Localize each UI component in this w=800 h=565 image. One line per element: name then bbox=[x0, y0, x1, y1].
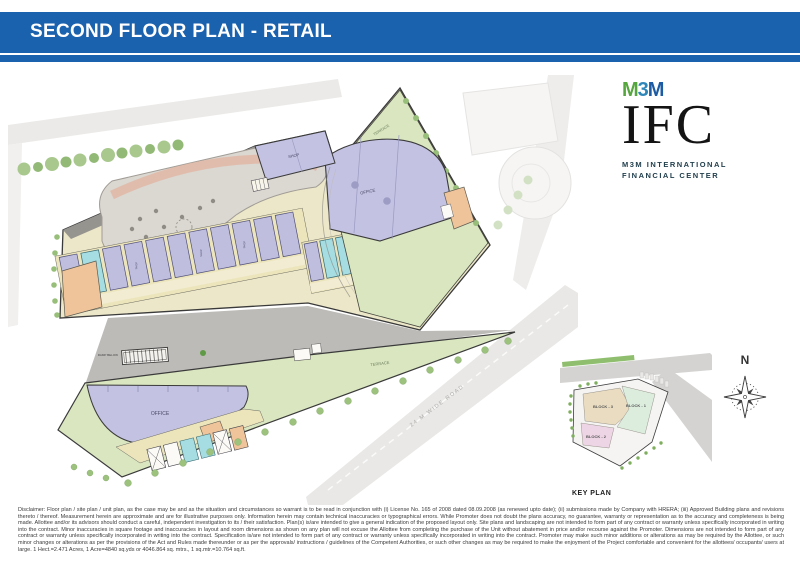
disclaimer-text: Disclaimer: Floor plan / site plan / uni… bbox=[18, 507, 784, 553]
ramp bbox=[122, 347, 169, 364]
key-block-1-label: BLOCK - 1 bbox=[626, 403, 647, 408]
title-bar: SECOND FLOOR PLAN - RETAIL bbox=[0, 12, 800, 62]
service-room bbox=[294, 348, 311, 361]
service-room bbox=[312, 343, 322, 353]
title-bar-divider bbox=[0, 53, 800, 55]
column bbox=[351, 181, 359, 189]
compass-north-label: N bbox=[741, 353, 750, 367]
ifc-logo: IFC bbox=[622, 100, 787, 152]
logo-tagline: M3M INTERNATIONAL FINANCIAL CENTER bbox=[622, 159, 787, 182]
compass-rose-icon bbox=[724, 376, 766, 418]
key-block-2-label: BLOCK - 2 bbox=[586, 434, 607, 439]
logo-tagline-line2: FINANCIAL CENTER bbox=[622, 171, 719, 180]
shop-label: SHOP bbox=[134, 262, 138, 270]
key-road-top bbox=[560, 353, 712, 383]
page-title: SECOND FLOOR PLAN - RETAIL bbox=[30, 21, 332, 43]
office-label: OFFICE bbox=[151, 411, 170, 417]
key-plan: BLOCK - 3 BLOCK - 1 BLOCK - 2 KEY PLAN bbox=[560, 352, 712, 502]
tree-icon bbox=[200, 350, 206, 356]
floor-plan: 24 M WIDE ROAD bbox=[8, 75, 578, 505]
shop-label: SHOP bbox=[199, 249, 203, 257]
service-room-orange bbox=[62, 261, 102, 317]
column bbox=[383, 197, 391, 205]
ramp-label: RAMP BELOW bbox=[98, 353, 118, 357]
compass: N bbox=[722, 350, 770, 430]
brand-logo: M3M IFC M3M INTERNATIONAL FINANCIAL CENT… bbox=[622, 80, 787, 182]
logo-tagline-line1: M3M INTERNATIONAL bbox=[622, 160, 727, 169]
road-top-left bbox=[8, 79, 342, 145]
key-block-3-label: BLOCK - 3 bbox=[593, 404, 614, 409]
key-plan-title: KEY PLAN bbox=[572, 490, 611, 497]
shop-label: SHOP bbox=[242, 241, 246, 249]
